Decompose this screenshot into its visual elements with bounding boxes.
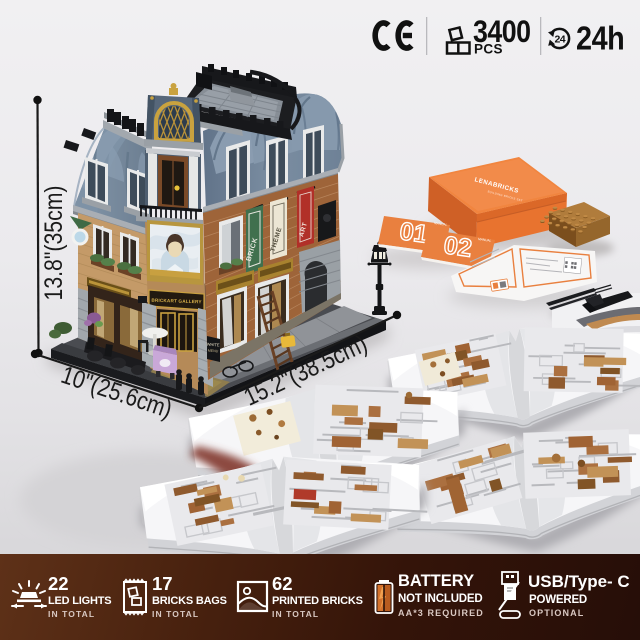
svg-text:02: 02 xyxy=(442,231,473,263)
svg-text:24: 24 xyxy=(554,33,565,45)
svg-text:24h: 24h xyxy=(576,19,624,57)
svg-text:WHITE: WHITE xyxy=(207,342,221,348)
svg-text:MENU: MENU xyxy=(208,349,219,354)
svg-text:PCS: PCS xyxy=(474,42,503,57)
svg-text:13.8"(35cm): 13.8"(35cm) xyxy=(39,186,67,301)
